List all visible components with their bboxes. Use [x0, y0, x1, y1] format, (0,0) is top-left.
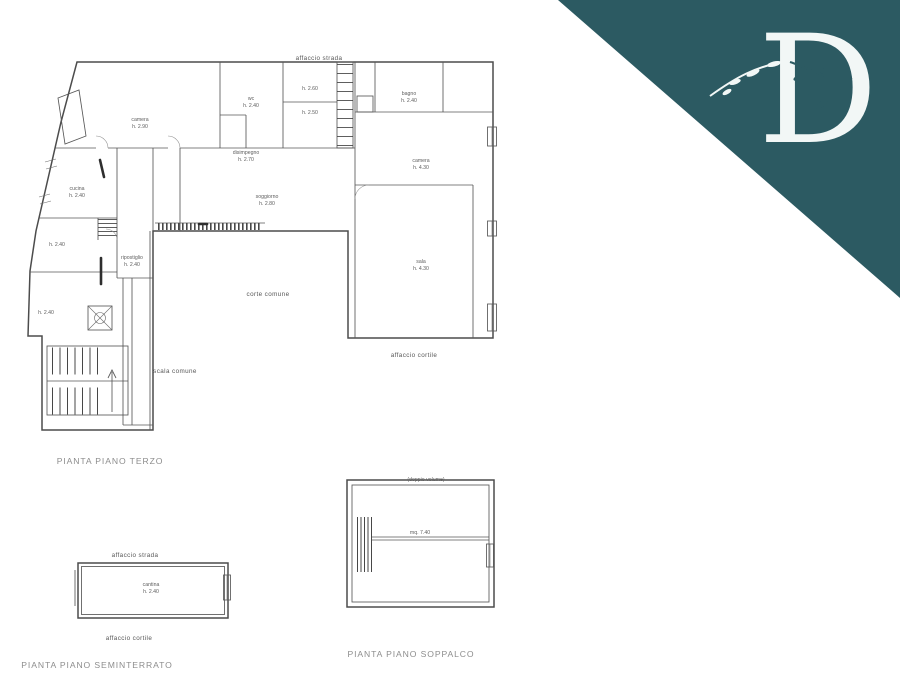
label-affaccio-cortile: affaccio cortile	[391, 352, 438, 359]
room-label: cantina h. 2.40	[143, 582, 160, 595]
floor-plan-document: camera h. 2.90 wc h. 2.40 h. 2.60 h. 2.5…	[0, 0, 900, 682]
room-height: h. 2.50	[302, 110, 318, 116]
plan-terzo: camera h. 2.90 wc h. 2.40 h. 2.60 h. 2.5…	[28, 55, 497, 466]
room-height: h. 2.40	[49, 242, 65, 248]
label-scala-comune: scala comune	[153, 368, 197, 375]
room-name: cucina	[70, 186, 85, 192]
room-label: h. 2.40	[49, 242, 65, 248]
room-label: bagno h. 2.40	[401, 91, 417, 104]
room-height: h. 2.40	[69, 193, 85, 199]
room-name: sala	[416, 259, 426, 265]
plan-seminterrato: affaccio strada cantina h. 2.40 affaccio…	[21, 552, 230, 670]
room-label: h. 2.60	[302, 86, 318, 92]
label-affaccio-strada: affaccio strada	[112, 552, 159, 559]
scan-layer: camera h. 2.90 wc h. 2.40 h. 2.60 h. 2.5…	[21, 55, 496, 670]
caption-piano-terzo: PIANTA PIANO TERZO	[57, 456, 164, 466]
room-label: camera h. 4.30	[412, 158, 429, 171]
room-label: camera h. 2.90	[131, 117, 148, 130]
room-label: wc h. 2.40	[243, 96, 259, 109]
room-height: h. 4.30	[413, 165, 429, 171]
interior-walls	[30, 62, 493, 430]
room-height: h. 2.60	[302, 86, 318, 92]
closet-box	[357, 96, 373, 112]
room-name: cantina	[143, 582, 160, 588]
label-affaccio-strada: affaccio strada	[296, 55, 343, 62]
plan-soppalco: (doppio volume) mq. 7.40 PIANTA PIANO SO…	[347, 477, 494, 659]
room-label: sala h. 4.30	[413, 259, 429, 272]
room-name: camera	[412, 158, 429, 164]
exterior-walls	[347, 480, 494, 607]
room-height: h. 2.40	[243, 103, 259, 109]
room-name: wc	[248, 96, 255, 102]
room-height: h. 2.70	[238, 157, 254, 163]
room-name: disimpegno	[233, 150, 260, 156]
stairwell-box	[337, 62, 353, 148]
room-label: cucina h. 2.40	[69, 186, 85, 199]
room-label: ripostiglio h. 2.40	[121, 255, 143, 268]
agency-logo: D	[558, 0, 900, 298]
room-name: soggiorno	[256, 194, 279, 200]
label-doppio-volume: (doppio volume)	[407, 477, 444, 483]
room-name: bagno	[402, 91, 417, 97]
caption-piano-seminterrato: PIANTA PIANO SEMINTERRATO	[21, 660, 172, 670]
room-height: h. 2.90	[132, 124, 148, 130]
room-height: h. 4.30	[413, 266, 429, 272]
room-label: disimpegno h. 2.70	[233, 150, 260, 163]
label-area-mq: mq. 7.40	[410, 530, 430, 536]
mezzanine-edge	[371, 537, 489, 540]
room-height: h. 2.40	[124, 262, 140, 268]
room-label: soggiorno h. 2.80	[256, 194, 279, 207]
room-height: h. 2.40	[143, 589, 159, 595]
room-height: h. 2.80	[259, 201, 275, 207]
label-affaccio-cortile: affaccio cortile	[106, 635, 153, 642]
stair-direction-arrow	[108, 370, 116, 412]
room-name: ripostiglio	[121, 255, 143, 261]
room-label: h. 2.40	[38, 310, 54, 316]
room-name: camera	[131, 117, 148, 123]
room-height: h. 2.40	[38, 310, 54, 316]
caption-piano-soppalco: PIANTA PIANO SOPPALCO	[348, 649, 475, 659]
shaft-cross	[88, 306, 112, 330]
common-stair-box	[47, 346, 128, 415]
exterior-walls	[28, 62, 493, 430]
room-height: h. 2.40	[401, 98, 417, 104]
interior-wall-line	[352, 485, 489, 602]
room-label: h. 2.50	[302, 110, 318, 116]
label-corte-comune: corte comune	[247, 291, 290, 298]
